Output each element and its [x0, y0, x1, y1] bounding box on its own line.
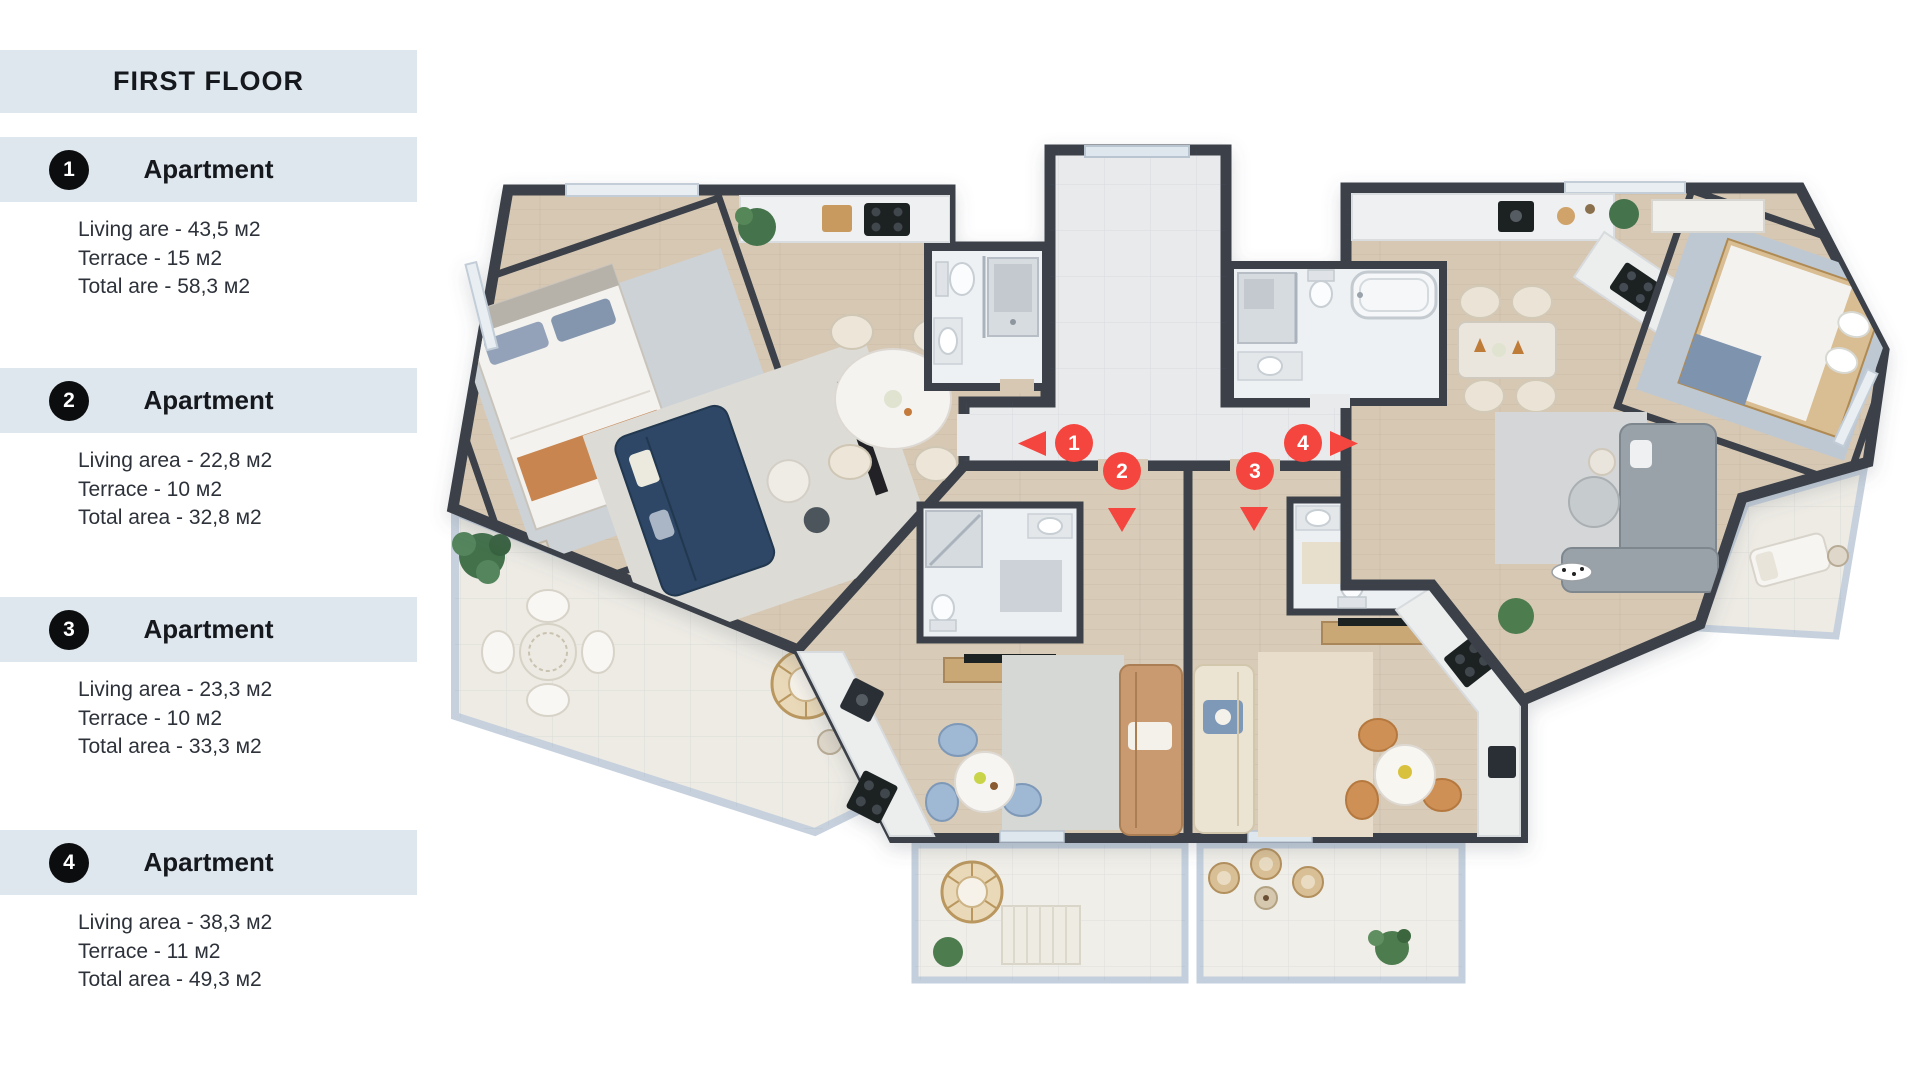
window	[1565, 182, 1685, 193]
plant-icon	[1498, 598, 1534, 634]
bath-mat	[1000, 560, 1062, 612]
marker-4-number: 4	[1297, 432, 1309, 455]
floorplan: 1 2 3 4	[0, 0, 1920, 1080]
apartment-2-balcony	[915, 845, 1185, 980]
bathtub-icon	[1352, 272, 1436, 318]
cutting-board-icon	[822, 205, 852, 232]
marker-1-number: 1	[1068, 432, 1080, 455]
sink-icon	[1028, 514, 1072, 538]
dresser-icon	[1652, 200, 1764, 232]
side-table-icon	[1828, 546, 1848, 566]
sink-icon	[1296, 506, 1340, 530]
toilet-icon	[1308, 270, 1334, 307]
apartment-2-bathroom	[920, 505, 1080, 640]
door-opening	[1000, 379, 1034, 393]
cooktop-icon	[864, 203, 910, 236]
apartment-1-bathroom	[928, 247, 1046, 393]
outdoor-mat-icon	[1002, 906, 1080, 964]
dog-icon	[1552, 563, 1592, 581]
window	[566, 184, 698, 196]
balcony-door-apartment-2	[1000, 831, 1064, 842]
apartment-4-bathroom	[1230, 265, 1443, 408]
sink-icon	[1488, 746, 1516, 778]
hall-window	[1085, 146, 1189, 157]
shower-icon	[1238, 273, 1296, 343]
toilet-icon	[930, 595, 956, 631]
coffee-table-icon	[1589, 449, 1615, 475]
sink-icon	[1238, 352, 1302, 380]
sink-icon	[934, 318, 962, 364]
sink-icon	[1498, 201, 1534, 232]
plate-icon	[1557, 207, 1575, 225]
marker-2-number: 2	[1116, 460, 1128, 483]
plant-icon	[933, 937, 963, 967]
plant-icon	[1609, 199, 1639, 229]
apartment-3-balcony	[1200, 845, 1462, 980]
shower-icon	[984, 256, 1038, 338]
page: { "sidebar": { "title": "FIRST FLOOR", "…	[0, 0, 1920, 1080]
door-opening	[1310, 394, 1350, 408]
marker-3-number: 3	[1249, 460, 1261, 483]
sofa-icon	[1120, 665, 1182, 835]
ottoman-icon	[1569, 477, 1619, 527]
toilet-icon	[936, 262, 974, 296]
hanging-egg-chair-icon	[942, 862, 1002, 922]
sofa-icon	[1194, 665, 1254, 833]
bowl-icon	[1585, 204, 1595, 214]
door-opening-apartment-1	[957, 414, 970, 456]
outdoor-coffee-table-icon	[1255, 887, 1277, 909]
